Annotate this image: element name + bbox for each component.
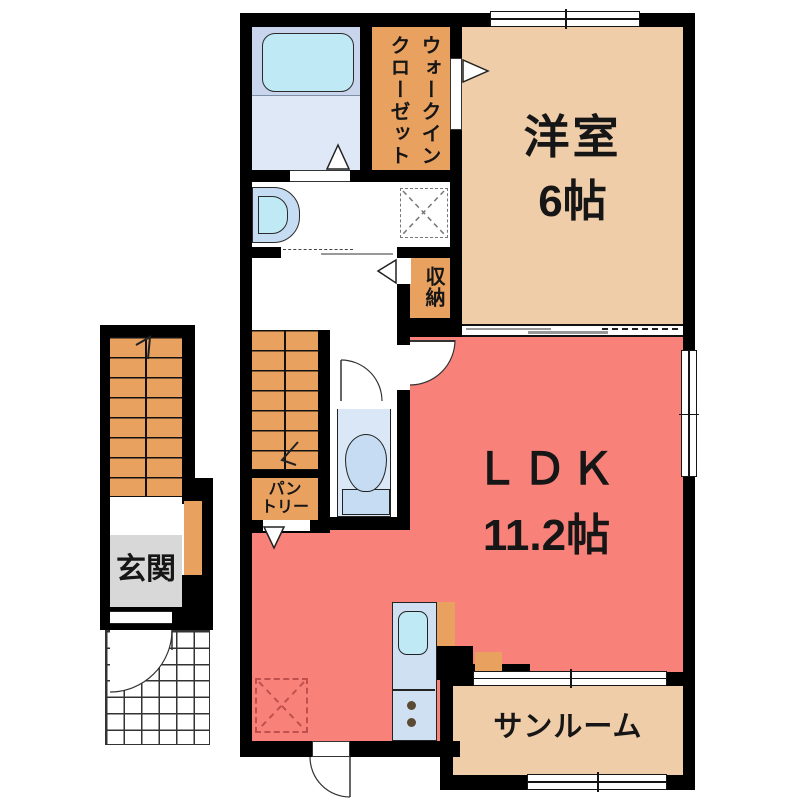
stair-landing [110, 497, 182, 535]
wall [453, 672, 473, 686]
kitchen-cabinet [437, 602, 455, 646]
wall [397, 247, 450, 258]
staircase-annex [110, 337, 182, 497]
step-cabinet [475, 652, 502, 671]
bathroom-door-opening [290, 170, 350, 182]
entrance-door-opening [110, 611, 172, 624]
washing-machine-space [400, 188, 448, 238]
ldk-size: 11.2帖 [410, 512, 683, 560]
sliding-door-line [283, 249, 353, 250]
pantry-label-line2: トリー [252, 499, 318, 517]
bathtub [262, 33, 354, 92]
stair-direction-arrow [128, 331, 162, 361]
pantry-door-triangle-icon [263, 526, 285, 550]
sliding-door-line [528, 331, 608, 334]
sunroom-inner-window [473, 671, 667, 686]
western-room [462, 27, 683, 324]
pantry-label-line1: パン [252, 481, 318, 499]
window-right [681, 350, 697, 477]
wall [683, 13, 695, 350]
wall [667, 672, 683, 686]
storage-door-triangle-icon [377, 259, 397, 285]
back-door-opening [312, 741, 350, 757]
wall [683, 477, 695, 790]
window-tick [565, 9, 567, 29]
wall [240, 13, 490, 27]
window-top [490, 11, 640, 27]
refrigerator-x-icon [257, 680, 306, 731]
wall [440, 775, 527, 790]
entrance-door-arc [110, 630, 174, 694]
wall [318, 330, 330, 530]
toilet-door-arc [333, 357, 385, 405]
wall [182, 337, 195, 478]
refrigerator-space [255, 678, 308, 733]
window-tick [597, 772, 599, 792]
western-room-size: 6帖 [462, 178, 683, 226]
washroom-sliding-door [281, 247, 397, 257]
wall [252, 170, 290, 182]
western-ldk-sliding-door [462, 324, 683, 337]
sliding-door-line [321, 253, 393, 255]
washing-machine-x-icon [401, 189, 446, 236]
wall [318, 517, 410, 530]
wall [397, 390, 410, 530]
wall [360, 27, 372, 182]
shoe-cabinet [184, 501, 202, 575]
wall [240, 741, 312, 757]
stove-burner [407, 718, 416, 727]
ldk-door-arc [410, 340, 457, 387]
ldk-label: ＬＤＫ [410, 446, 683, 494]
floor-plan: 洋室 6帖 ＬＤＫ 11.2帖 サンルーム 玄関 ウォークインクローゼット 収納… [0, 0, 800, 800]
stair-direction-arrow [268, 436, 302, 466]
wall [667, 775, 695, 790]
wall [450, 27, 462, 58]
wall [100, 325, 110, 620]
wall [450, 130, 462, 330]
kitchen-counter-divider [393, 689, 435, 691]
western-room-label: 洋室 [462, 112, 683, 163]
wall [440, 672, 453, 790]
sliding-door-line [466, 328, 551, 330]
closet-door-opening [450, 58, 462, 130]
wall [350, 170, 360, 182]
storage-label: 収納 [414, 262, 444, 312]
toilet-tank [342, 489, 390, 515]
sunroom-outer-window [527, 774, 667, 790]
stove-burner [407, 701, 416, 710]
walk-in-closet-label: ウォークインクローゼット [382, 32, 444, 170]
kitchen-sink [398, 611, 428, 655]
toilet-bowl [345, 434, 387, 492]
bathroom-door-triangle-icon [326, 144, 350, 170]
entrance-label: 玄関 [110, 553, 182, 586]
wall [252, 470, 318, 478]
window-tick [679, 414, 699, 416]
ldk-door-opening [397, 345, 410, 390]
wall [240, 13, 252, 757]
sunroom-label: サンルーム [453, 712, 683, 744]
storage-door-opening [396, 258, 411, 284]
sliding-door-line [602, 328, 678, 330]
closet-door-triangle-icon [462, 59, 490, 83]
wall [397, 318, 462, 337]
wall [372, 170, 462, 182]
back-door-arc [310, 757, 352, 799]
washbasin-bowl [258, 196, 288, 234]
window-tick [570, 669, 572, 688]
wall [240, 247, 281, 258]
